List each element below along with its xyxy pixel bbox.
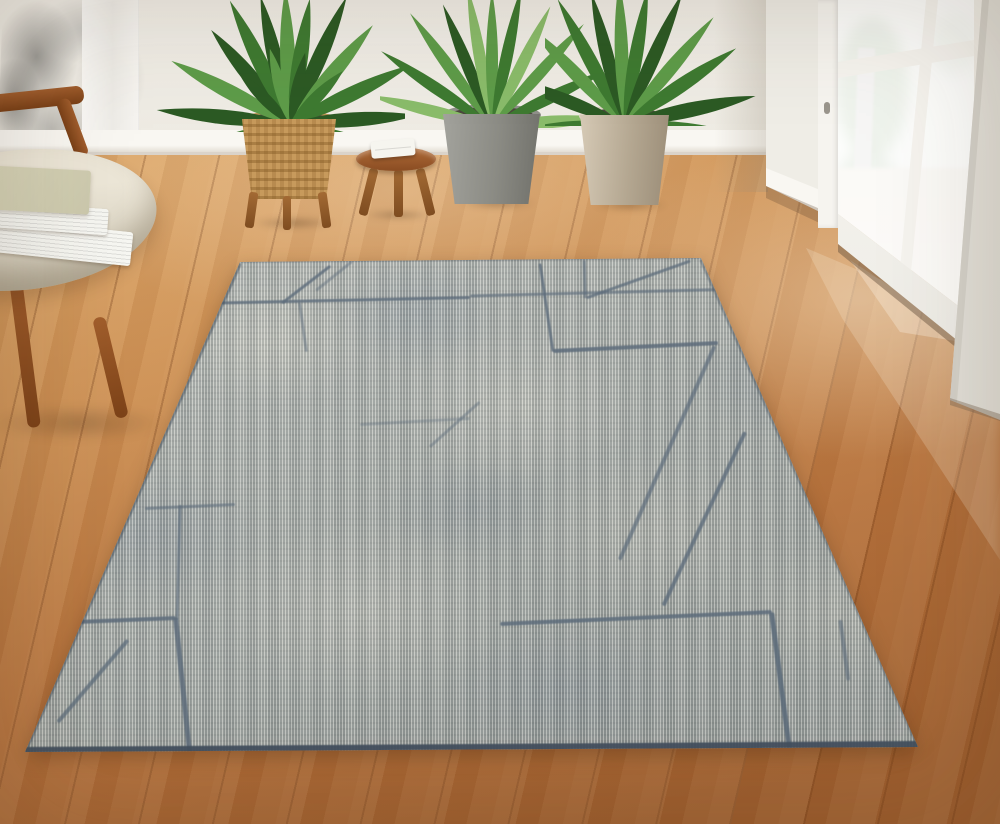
rug-pattern-line	[700, 258, 920, 745]
cloth-fold-line	[375, 146, 411, 150]
rug-pattern-line	[770, 612, 793, 751]
living-room-rug-photo	[0, 0, 1000, 824]
rug-pattern-line	[429, 401, 481, 448]
rug-pattern-line	[618, 345, 717, 561]
rug-pattern-line	[585, 260, 690, 300]
plant-left-leaves	[155, 0, 405, 132]
rug-pattern-line	[196, 296, 470, 305]
rug-pattern-line	[25, 741, 918, 755]
wicker-planter-body	[240, 119, 338, 199]
beige-pot-body	[580, 115, 669, 205]
rug-pattern-line	[838, 620, 850, 681]
plant-right-leaves	[545, 0, 760, 126]
rug-pattern-line	[28, 616, 176, 626]
book-top-sage	[0, 165, 91, 214]
door-jamb	[818, 0, 840, 228]
door-latch	[824, 102, 830, 114]
rug-pattern-line	[315, 261, 353, 292]
stool-leg	[394, 170, 403, 217]
rug-pattern-line	[240, 257, 701, 263]
rug-pattern-line	[174, 618, 192, 753]
planter-leg	[283, 196, 291, 230]
rug-pattern-line	[299, 302, 308, 352]
rug-pattern-line	[500, 610, 772, 626]
rug-pattern-line	[56, 639, 129, 724]
rug-pattern-line	[661, 431, 747, 607]
rug-pattern-line	[175, 505, 181, 620]
rug-pattern-line	[539, 263, 555, 351]
rug-pattern-line	[145, 503, 235, 510]
rug-pattern-line	[553, 341, 718, 352]
gray-pot-body	[443, 114, 540, 204]
